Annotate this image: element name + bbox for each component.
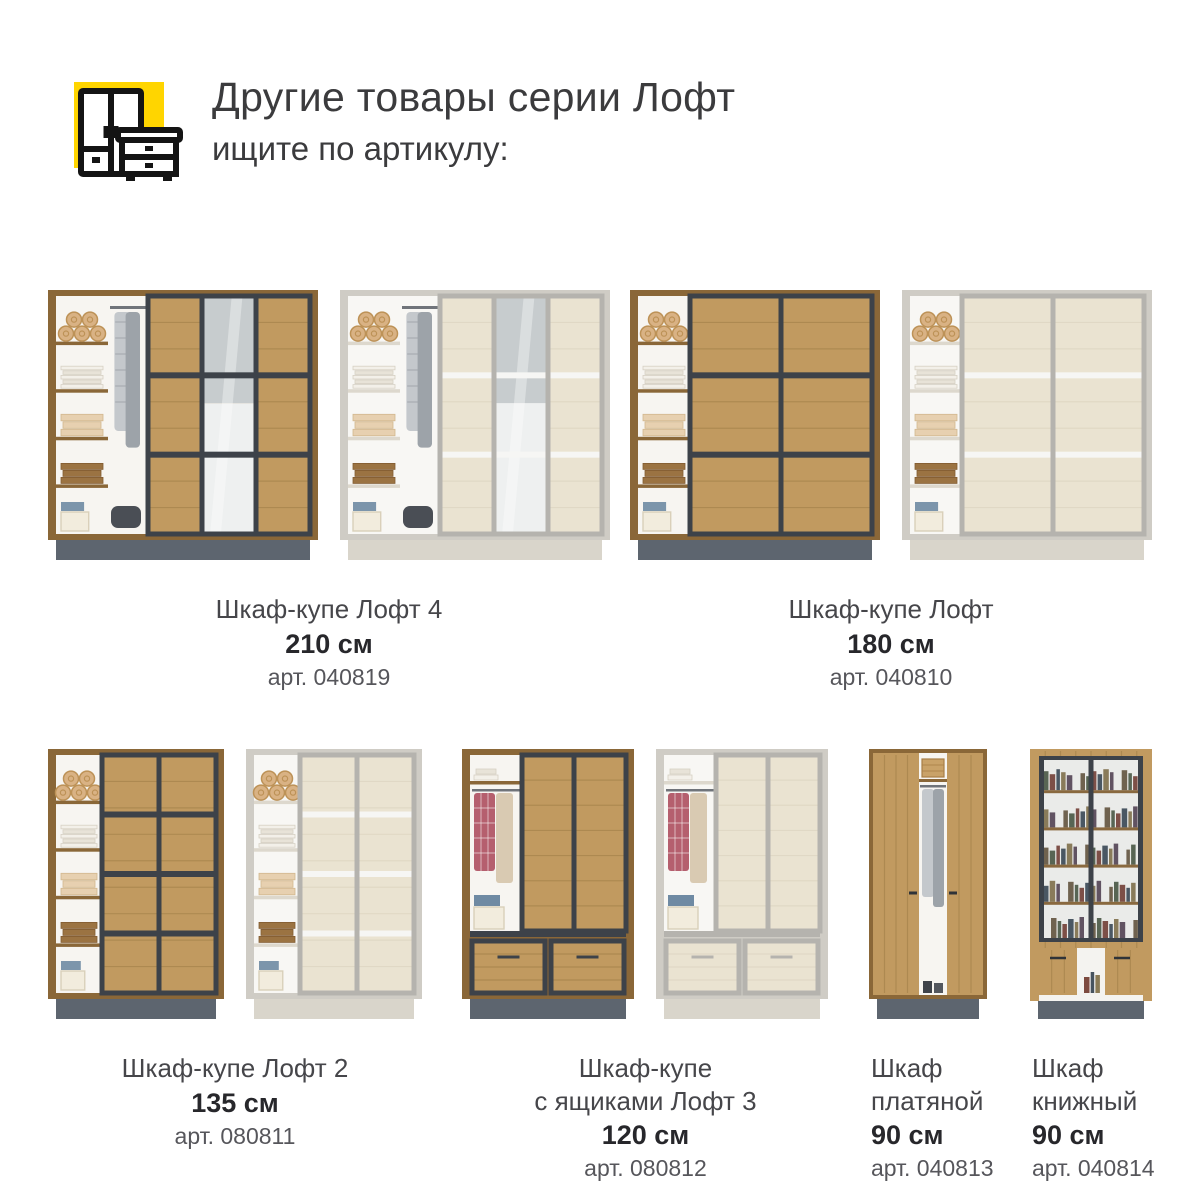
wardrobe-and-nightstand-icon	[64, 70, 186, 184]
product-article: арт. 040814	[1032, 1155, 1156, 1182]
product-images	[44, 284, 614, 569]
product-size: 180 см	[626, 629, 1156, 660]
page-title: Другие товары серии Лофт	[212, 74, 735, 121]
product-images	[458, 743, 832, 1028]
product-size: 210 см	[44, 629, 614, 660]
product-card-loft3: Шкаф-купес ящиками Лофт 3120 смарт. 0808…	[458, 743, 832, 1183]
wardrobe-image-loft180-dark	[626, 284, 884, 569]
page-subtitle: ищите по артикулу:	[212, 130, 735, 168]
product-caption: Шкаф-купес ящиками Лофт 3120 смарт. 0808…	[458, 1052, 832, 1183]
wardrobe-image-loft4-dark	[44, 284, 322, 569]
product-name: Шкафкнижный	[1032, 1052, 1156, 1118]
product-caption: Шкаф-купе Лофт180 смарт. 040810	[626, 593, 1156, 691]
product-card-loft4: Шкаф-купе Лофт 4210 смарт. 040819	[44, 284, 614, 691]
product-card-loft2: Шкаф-купе Лофт 2135 смарт. 080811	[44, 743, 426, 1150]
product-size: 135 см	[44, 1088, 426, 1119]
product-caption: Шкаф-купе Лофт 2135 смарт. 080811	[44, 1052, 426, 1150]
product-images	[626, 284, 1156, 569]
wardrobe-image-loft2-light	[242, 743, 426, 1028]
product-article: арт. 040813	[871, 1155, 994, 1182]
product-card-book: Шкафкнижный90 смарт. 040814	[1026, 743, 1156, 1183]
product-size: 90 см	[871, 1120, 994, 1151]
product-grid: Шкаф-купе Лофт 4210 смарт. 040819Шкаф-ку…	[0, 284, 1200, 1182]
product-card-loft180: Шкаф-купе Лофт180 смарт. 040810	[626, 284, 1156, 691]
product-card-plat: Шкафплатяной90 смарт. 040813	[865, 743, 994, 1183]
header-text: Другие товары серии Лофт ищите по артику…	[212, 70, 735, 168]
product-size: 90 см	[1032, 1120, 1156, 1151]
product-caption: Шкафкнижный90 смарт. 040814	[1026, 1052, 1156, 1183]
wardrobe-image-loft3-light	[652, 743, 832, 1028]
page-header: Другие товары серии Лофт ищите по артику…	[0, 0, 1200, 184]
product-images	[44, 743, 426, 1028]
wardrobe-image-loft2-dark	[44, 743, 228, 1028]
product-caption: Шкаф-купе Лофт 4210 смарт. 040819	[44, 593, 614, 691]
wardrobe-image-plat-dark	[865, 743, 991, 1028]
product-article: арт. 080812	[458, 1155, 832, 1182]
product-article: арт. 040810	[626, 664, 1156, 691]
product-name: Шкаф-купе Лофт 4	[44, 593, 614, 626]
product-images	[1026, 743, 1156, 1028]
product-size: 120 см	[458, 1120, 832, 1151]
product-caption: Шкафплатяной90 смарт. 040813	[865, 1052, 994, 1183]
wardrobe-image-loft4-light	[336, 284, 614, 569]
product-article: арт. 040819	[44, 664, 614, 691]
catalog-page: Другие товары серии Лофт ищите по артику…	[0, 0, 1200, 1200]
product-name: Шкафплатяной	[871, 1052, 994, 1118]
furniture-series-icon	[64, 70, 186, 184]
icon-strokes	[81, 91, 180, 181]
product-row-1: Шкаф-купе Лофт 4210 смарт. 040819Шкаф-ку…	[44, 284, 1156, 691]
wardrobe-image-loft3-dark	[458, 743, 638, 1028]
wardrobe-image-book-dark	[1026, 743, 1156, 1028]
product-article: арт. 080811	[44, 1123, 426, 1150]
product-row-2: Шкаф-купе Лофт 2135 смарт. 080811Шкаф-ку…	[44, 743, 1156, 1183]
product-name: Шкаф-купе Лофт 2	[44, 1052, 426, 1085]
product-images	[865, 743, 994, 1028]
product-name: Шкаф-купе Лофт	[626, 593, 1156, 626]
product-name: Шкаф-купес ящиками Лофт 3	[458, 1052, 832, 1118]
wardrobe-image-loft180-light	[898, 284, 1156, 569]
